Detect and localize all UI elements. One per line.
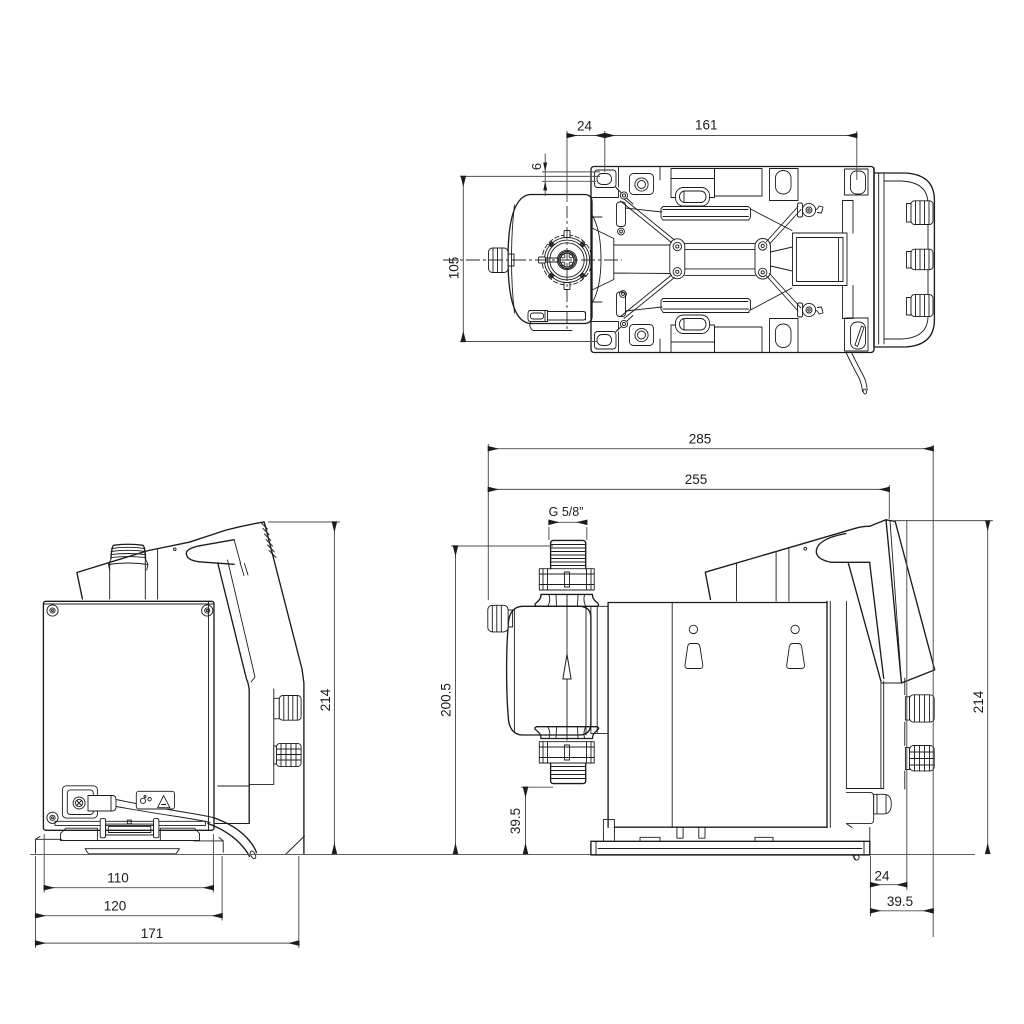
svg-text:6: 6 xyxy=(529,163,544,170)
svg-text:200.5: 200.5 xyxy=(439,683,454,717)
svg-text:24: 24 xyxy=(577,119,593,134)
svg-text:G 5/8”: G 5/8” xyxy=(549,505,584,519)
svg-text:24: 24 xyxy=(874,869,890,884)
svg-text:214: 214 xyxy=(971,690,986,713)
svg-text:110: 110 xyxy=(107,871,129,886)
svg-text:161: 161 xyxy=(695,118,718,133)
svg-text:39.5: 39.5 xyxy=(887,894,913,909)
svg-text:285: 285 xyxy=(689,432,712,447)
svg-text:39.5: 39.5 xyxy=(508,808,523,834)
svg-text:214: 214 xyxy=(318,688,333,711)
svg-text:171: 171 xyxy=(141,926,164,941)
svg-text:120: 120 xyxy=(104,899,127,914)
svg-text:255: 255 xyxy=(685,472,708,487)
